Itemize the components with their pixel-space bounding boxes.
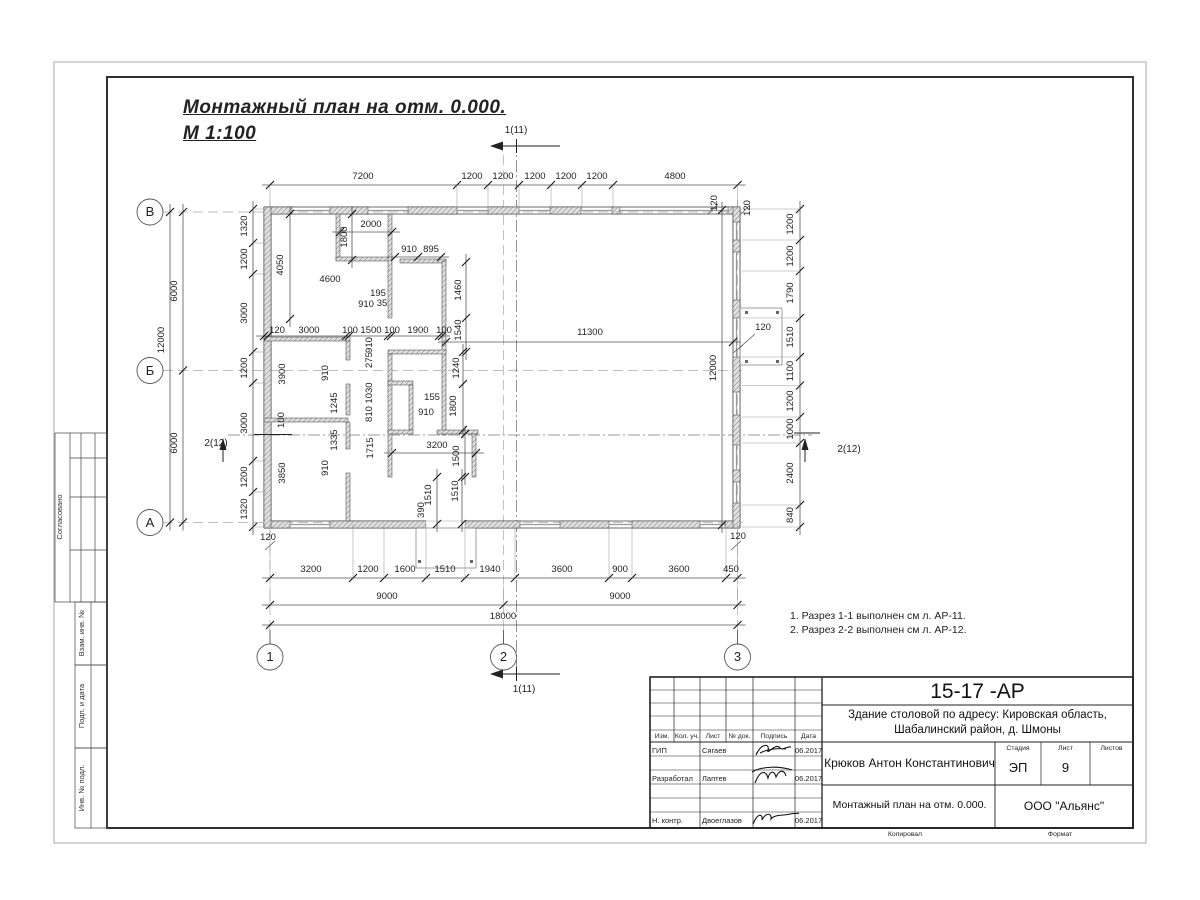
stamp-row-date: 06.2017: [795, 774, 822, 783]
dim-label: 3200: [426, 440, 447, 451]
dim-label: 840: [785, 507, 796, 523]
exterior-wall-faces: [264, 207, 740, 528]
dim-label: 1335: [329, 429, 340, 450]
stamp-sheet-number: 9: [1041, 760, 1090, 775]
dim-label: 1240: [451, 357, 462, 378]
dim-label: 4050: [275, 254, 286, 275]
dim-label: 1000: [785, 418, 796, 439]
dim-label: 120: [709, 195, 720, 211]
dim-label: 1460: [453, 279, 464, 300]
dim-label: 810: [364, 406, 375, 422]
stamp-col-list: Лист: [700, 733, 726, 740]
stamp-row-name: Сягаев: [702, 746, 726, 755]
section-mark-label: 1(11): [513, 684, 536, 695]
dim-label: 3600: [551, 564, 572, 575]
axis-label-v: В: [146, 204, 155, 219]
dim-label: 120: [260, 532, 276, 543]
side-label: Подп. и дата: [77, 683, 86, 728]
dimension-chains: [166, 181, 804, 629]
dim-label: 910: [320, 460, 331, 476]
axis-label-b: Б: [146, 363, 155, 378]
dim-label: 1200: [357, 564, 378, 575]
dim-label: 12000: [156, 327, 167, 353]
dim-label: 9000: [609, 591, 630, 602]
stamp-doc-title: Монтажный план на отм. 0.000.: [824, 799, 995, 811]
dim-label: 1030: [364, 382, 375, 403]
dim-label: 3900: [277, 363, 288, 384]
dim-label: 910: [401, 244, 417, 255]
dim-label: 895: [423, 244, 439, 255]
dim-label: 120: [755, 322, 771, 333]
dim-label: 100: [342, 325, 358, 336]
dim-label: 1200: [492, 171, 513, 182]
dim-label: 1540: [453, 319, 464, 340]
stamp-object-line2: Шабалинский район, д. Шмоны: [826, 723, 1129, 738]
dim-label: 1320: [239, 498, 250, 519]
dim-label: 900: [612, 564, 628, 575]
dim-label: 1900: [407, 325, 428, 336]
dim-label: 1200: [586, 171, 607, 182]
section-markers: [220, 139, 821, 681]
stamp-col-izm: Изм.: [650, 733, 674, 740]
stamp-row-role: Разработал: [652, 774, 693, 783]
dim-label: 2400: [785, 462, 796, 483]
dim-label: 910: [358, 299, 374, 310]
dim-label: 1790: [785, 282, 796, 303]
dim-label: 100: [384, 325, 400, 336]
stamp-document-code: 15-17 -АР: [822, 680, 1133, 704]
dim-label: 100: [276, 412, 287, 428]
dim-label: 3600: [668, 564, 689, 575]
axis-label-a: А: [146, 515, 155, 530]
dim-label: 1100: [785, 361, 796, 381]
stamp-row-date: 06.2017: [795, 746, 822, 755]
section-mark-label: 2(12): [837, 444, 860, 455]
note-line-2: 2. Разрез 2-2 выполнен см л. АР-12.: [790, 624, 967, 636]
axis-label-1: 1: [266, 649, 273, 664]
dim-label: 1510: [450, 480, 461, 501]
dim-label: 6000: [169, 280, 180, 301]
stamp-stage-label: Стадия: [995, 745, 1041, 752]
dim-label: 1200: [461, 171, 482, 182]
side-label: Взам. инв. №: [77, 610, 86, 656]
stamp-stage-value: ЭП: [995, 760, 1041, 775]
stamp-row-date: 06.2017: [795, 816, 822, 825]
dim-label: 3850: [277, 462, 288, 483]
section-lines: [228, 140, 812, 672]
dim-label: 1200: [239, 248, 250, 269]
stamp-kopiroval: Копировал: [860, 831, 950, 838]
stamp-format: Формат: [1020, 831, 1100, 838]
dim-label: 910: [364, 337, 375, 353]
dim-label: 390: [416, 502, 427, 518]
dim-label: 1200: [785, 245, 796, 266]
dim-label: 120: [730, 531, 746, 542]
stamp-col-date: Дата: [795, 733, 822, 740]
stamp-person: Крюков Антон Константинович: [824, 756, 995, 770]
drawing-title-line1: Монтажный план на отм. 0.000.: [183, 97, 506, 119]
dim-label: 275: [364, 352, 375, 368]
stamp-col-sign: Подпись: [753, 733, 795, 740]
stamp-sheets-label: Листов: [1090, 745, 1133, 752]
stamp-object-line1: Здание столовой по адресу: Кировская обл…: [826, 708, 1129, 723]
dim-label: 3200: [300, 564, 321, 575]
dim-label: 7200: [352, 171, 373, 182]
dim-label: 4600: [319, 274, 340, 285]
dim-label: 1600: [394, 564, 415, 575]
note-line-1: 1. Разрез 1-1 выполнен см л. АР-11.: [790, 610, 966, 622]
stamp-company: ООО "Альянс": [995, 799, 1133, 813]
dim-label: 9000: [376, 591, 397, 602]
dim-label: 120: [742, 200, 753, 216]
dim-label: 1715: [365, 437, 376, 458]
stamp-col-doc: № док.: [726, 733, 753, 740]
stamp-row-name: Лаптев: [702, 774, 727, 783]
dim-label: 910: [418, 407, 434, 418]
dim-label: 1940: [479, 564, 500, 575]
drawing-title-line2: М 1:100: [183, 123, 256, 145]
dim-label: 450: [723, 564, 739, 575]
dim-label: 1510: [785, 326, 796, 347]
side-label: Инв. № подл.: [77, 765, 86, 812]
dim-label: 1800: [448, 395, 459, 416]
stamp-row-name: Двоеглазов: [702, 816, 742, 825]
dim-label: 910: [320, 365, 331, 381]
dim-label: 1800: [339, 226, 350, 247]
dim-label: 1510: [434, 564, 455, 575]
dim-label: 1245: [329, 392, 340, 413]
section-mark-label: 1(11): [505, 125, 528, 136]
dim-label: 3000: [298, 325, 319, 336]
stamp-row-role: ГИП: [652, 746, 667, 755]
dim-label: 6000: [169, 432, 180, 453]
dim-label: 1200: [785, 213, 796, 234]
drawing-sheet: 7200120012001200120012004800120120320012…: [0, 0, 1200, 900]
dim-label: 12000: [708, 355, 719, 381]
dim-label: 1320: [239, 215, 250, 236]
dim-label: 1200: [239, 466, 250, 487]
stamp-row-role: Н. контр.: [652, 816, 683, 825]
stamp-col-kol: Кол. уч.: [674, 733, 700, 740]
dim-label: 1200: [239, 357, 250, 378]
dim-label: 18000: [490, 611, 516, 622]
stamp-sheet-label: Лист: [1041, 745, 1090, 752]
dim-label: 2000: [360, 219, 381, 230]
wall-piers: [264, 207, 740, 528]
dim-label: 1500: [451, 445, 462, 466]
dim-label: 120: [269, 325, 285, 336]
dim-label: 1200: [785, 390, 796, 411]
dim-label: 1500: [360, 325, 381, 336]
dim-label: 1200: [555, 171, 576, 182]
dim-label: 1200: [524, 171, 545, 182]
dim-label: 155: [424, 392, 440, 403]
dim-label: 3000: [239, 302, 250, 323]
dim-label: 100: [436, 325, 452, 336]
porches: [416, 308, 782, 568]
section-mark-label: 2(12): [204, 438, 227, 449]
axis-label-3: 3: [734, 649, 741, 664]
axis-label-2: 2: [500, 649, 507, 664]
dim-label: 4800: [664, 171, 685, 182]
side-label: Согласовано: [55, 494, 64, 539]
dim-label: 3000: [239, 412, 250, 433]
dim-label: 35: [377, 298, 388, 309]
dim-label: 11300: [577, 327, 603, 338]
